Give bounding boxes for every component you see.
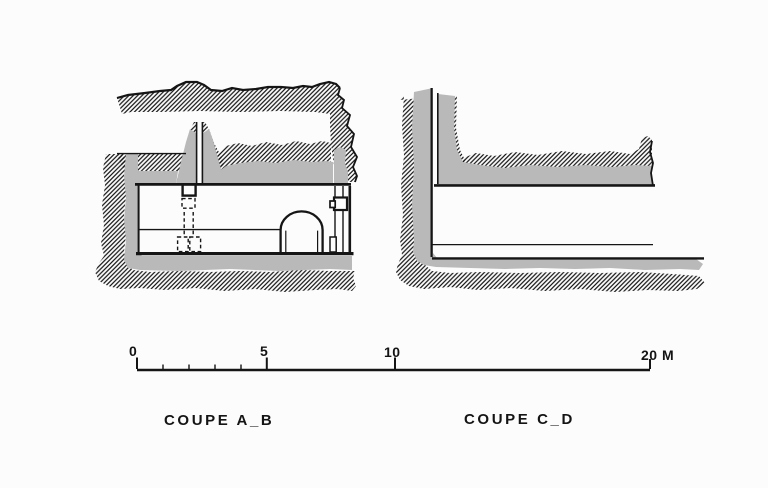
shaft-mouth: [183, 185, 196, 196]
sections-drawing: [0, 0, 768, 488]
wall-bracket-notch: [330, 201, 335, 208]
arched-niche: [281, 211, 323, 252]
figure-coupe-cd: [396, 88, 705, 292]
scale-label-20m: 20 M: [641, 347, 674, 363]
caption-coupe-cd: COUPE C_D: [464, 411, 575, 428]
scanned-drawing-page: 0 5 10 20 M COUPE A_B COUPE C_D: [0, 0, 768, 488]
caption-coupe-ab: COUPE A_B: [164, 412, 274, 429]
figure-coupe-ab: [95, 82, 357, 292]
earth-hatch-over-ledge: [455, 136, 652, 169]
scale-label-0: 0: [129, 343, 137, 359]
scale-label-5: 5: [260, 343, 268, 359]
scale-minor-ticks: [163, 365, 241, 370]
masonry-ceiling-left: [126, 171, 178, 184]
masonry-ledge: [438, 94, 652, 184]
wall-recess: [330, 237, 336, 252]
scale-label-10: 10: [384, 344, 401, 360]
